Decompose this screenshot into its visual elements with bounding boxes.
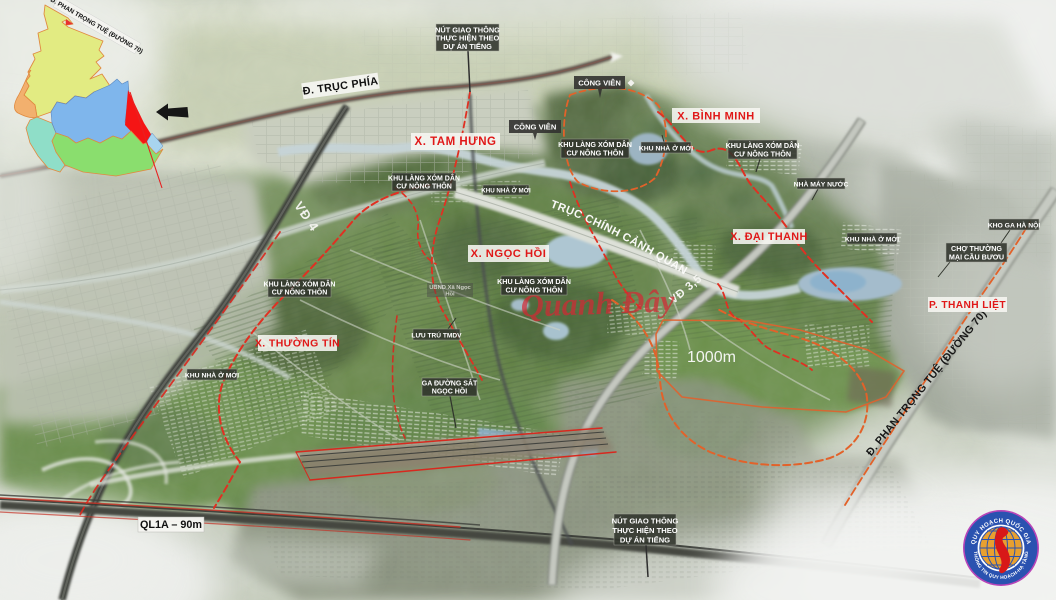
svg-text:KHU LÀNG XÓM DÂNCƯ NÔNG THÔN: KHU LÀNG XÓM DÂNCƯ NÔNG THÔN xyxy=(264,280,336,297)
svg-text:X. BÌNH MINH: X. BÌNH MINH xyxy=(677,110,755,123)
svg-text:KHU NHÀ Ở MỚI: KHU NHÀ Ở MỚI xyxy=(845,235,899,244)
svg-text:X. TAM HƯNG: X. TAM HƯNG xyxy=(415,136,497,148)
svg-text:X. NGỌC HỒI: X. NGỌC HỒI xyxy=(471,247,547,260)
svg-text:KHU LÀNG XÓM DÂNCƯ NÔNG THÔN: KHU LÀNG XÓM DÂNCƯ NÔNG THÔN xyxy=(726,141,800,158)
svg-text:CÔNG VIÊN: CÔNG VIÊN xyxy=(578,79,621,88)
svg-text:CHỢ THƯỜNGMẠI CẦU BƯƠU: CHỢ THƯỜNGMẠI CẦU BƯƠU xyxy=(949,244,1004,261)
svg-text:NÚT GIAO THÔNGTHỰC HIỆN THEODỰ: NÚT GIAO THÔNGTHỰC HIỆN THEODỰ ÁN TIẾNG xyxy=(612,517,679,545)
svg-text:LƯU TRÚ TMDV: LƯU TRÚ TMDV xyxy=(411,331,462,340)
svg-text:KHU LÀNG XÓM DÂNCƯ NÔNG THÔN: KHU LÀNG XÓM DÂNCƯ NÔNG THÔN xyxy=(497,277,571,294)
svg-text:X. ĐẠI THANH: X. ĐẠI THANH xyxy=(730,231,807,243)
svg-text:KHU NHÀ Ở MỚI: KHU NHÀ Ở MỚI xyxy=(185,371,239,380)
svg-text:CÔNG VIÊN: CÔNG VIÊN xyxy=(514,123,557,132)
svg-text:KHU LÀNG XÓM DÂNCƯ NÔNG THÔN: KHU LÀNG XÓM DÂNCƯ NÔNG THÔN xyxy=(388,174,460,191)
svg-text:1000m: 1000m xyxy=(687,349,736,366)
svg-text:KHU LÀNG XÓM DÂNCƯ NÔNG THÔN: KHU LÀNG XÓM DÂNCƯ NÔNG THÔN xyxy=(558,140,632,157)
svg-text:KHU NHÀ Ở MỚI: KHU NHÀ Ở MỚI xyxy=(481,187,531,195)
svg-text:X. THƯỜNG TÍN: X. THƯỜNG TÍN xyxy=(255,337,340,350)
svg-text:QL1A – 90m: QL1A – 90m xyxy=(140,519,202,531)
svg-text:KHU NHÀ Ở MỚI: KHU NHÀ Ở MỚI xyxy=(639,144,693,153)
svg-text:NHÀ MÁY NƯỚC: NHÀ MÁY NƯỚC xyxy=(794,180,849,189)
svg-text:KHO GA HÀ NỘI: KHO GA HÀ NỘI xyxy=(988,221,1041,230)
svg-text:P. THANH LIỆT: P. THANH LIỆT xyxy=(929,298,1006,311)
svg-text:NÚT GIAO THÔNGTHỰC HIỆN THEODỰ: NÚT GIAO THÔNGTHỰC HIỆN THEODỰ ÁN TIẾNG xyxy=(435,26,500,51)
